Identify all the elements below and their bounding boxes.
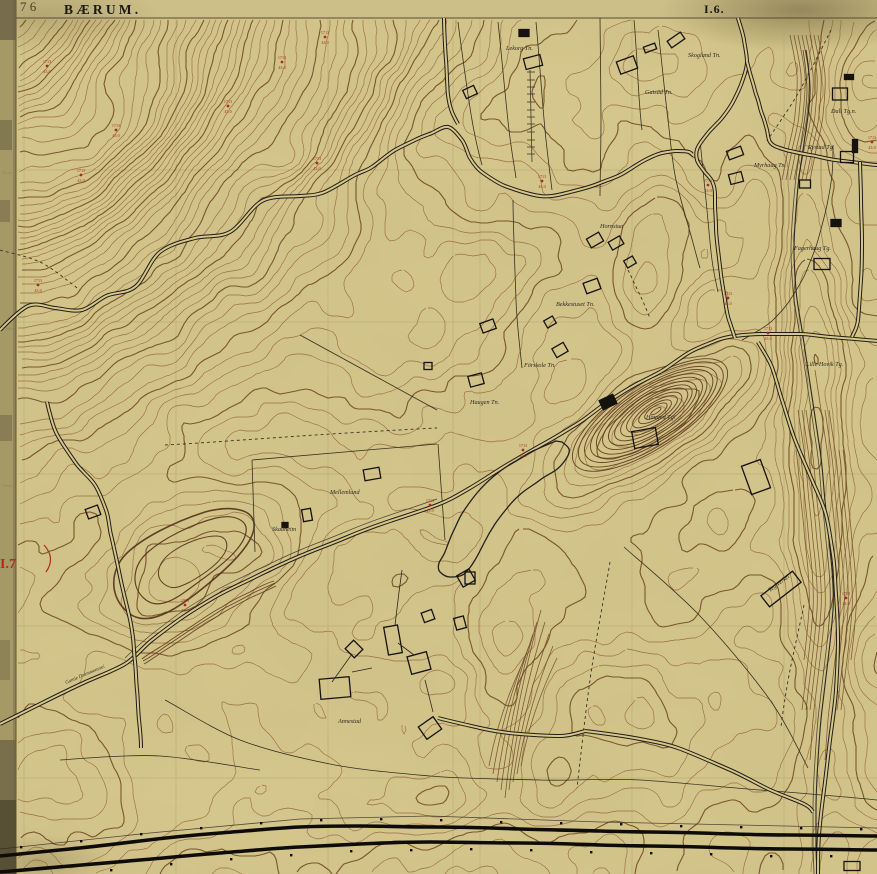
svg-text:Lekorg Tn.: Lekorg Tn. bbox=[505, 45, 533, 52]
svg-text:43.0: 43.0 bbox=[34, 288, 41, 293]
svg-text:1713: 1713 bbox=[842, 591, 850, 596]
svg-text:Fagerhaug Tg.: Fagerhaug Tg. bbox=[793, 245, 831, 252]
svg-text:43.0: 43.0 bbox=[724, 301, 731, 306]
svg-text:43.0: 43.0 bbox=[538, 184, 545, 189]
svg-text:1713: 1713 bbox=[724, 291, 732, 296]
svg-text:Hornstua: Hornstua bbox=[599, 223, 623, 230]
svg-text:43.0: 43.0 bbox=[426, 508, 433, 513]
svg-text:43.0: 43.0 bbox=[112, 133, 119, 138]
svg-text:1713: 1713 bbox=[538, 174, 546, 179]
svg-text:43.0: 43.0 bbox=[313, 166, 320, 171]
svg-text:1713: 1713 bbox=[181, 598, 189, 603]
svg-text:43.0: 43.0 bbox=[704, 188, 711, 193]
svg-text:43.0: 43.0 bbox=[43, 69, 50, 74]
svg-text:1713: 1713 bbox=[519, 443, 527, 448]
svg-text:1713: 1713 bbox=[868, 135, 876, 140]
svg-text:43.0: 43.0 bbox=[77, 178, 84, 183]
svg-text:1713: 1713 bbox=[426, 498, 434, 503]
svg-text:Vestre: Vestre bbox=[2, 483, 13, 488]
svg-text:I.7: I.7 bbox=[0, 557, 16, 572]
svg-text:7 6: 7 6 bbox=[20, 0, 37, 14]
svg-text:1713: 1713 bbox=[112, 123, 120, 128]
svg-text:Haugen Tg!: Haugen Tg! bbox=[645, 414, 676, 421]
svg-text:Haugen Tn.: Haugen Tn. bbox=[469, 399, 499, 406]
svg-text:Rystad Tg.: Rystad Tg. bbox=[807, 144, 834, 151]
svg-text:43.0: 43.0 bbox=[764, 336, 771, 341]
svg-text:1713: 1713 bbox=[224, 99, 232, 104]
svg-text:1713: 1713 bbox=[278, 55, 286, 60]
svg-text:1713: 1713 bbox=[77, 168, 85, 173]
svg-text:1713: 1713 bbox=[704, 178, 712, 183]
svg-text:43.0: 43.0 bbox=[224, 109, 231, 114]
svg-text:Myrhaug Tn.: Myrhaug Tn. bbox=[753, 162, 786, 169]
svg-text:S.ndre: S.ndre bbox=[2, 326, 14, 331]
svg-text:43.0: 43.0 bbox=[181, 608, 188, 613]
svg-text:43.0: 43.0 bbox=[321, 40, 328, 45]
svg-text:Mellemlund: Mellemlund bbox=[329, 489, 360, 496]
svg-text:BÆRUM.: BÆRUM. bbox=[64, 2, 141, 17]
svg-text:Förskole Tn.: Förskole Tn. bbox=[523, 362, 556, 369]
svg-text:Dali Tg.n.: Dali Tg.n. bbox=[830, 108, 856, 115]
svg-text:Annestad: Annestad bbox=[337, 718, 362, 725]
svg-text:43.0: 43.0 bbox=[868, 145, 875, 150]
svg-text:I.6.: I.6. bbox=[704, 2, 725, 16]
svg-text:Bekkestuset Tn.: Bekkestuset Tn. bbox=[556, 301, 595, 308]
svg-text:1713: 1713 bbox=[34, 278, 42, 283]
svg-text:Skogland Tn.: Skogland Tn. bbox=[688, 52, 721, 59]
svg-text:43.0: 43.0 bbox=[278, 65, 285, 70]
svg-text:43.0: 43.0 bbox=[842, 601, 849, 606]
svg-text:1713: 1713 bbox=[764, 326, 772, 331]
svg-text:Skadheim: Skadheim bbox=[272, 526, 297, 533]
svg-text:1713: 1713 bbox=[313, 156, 321, 161]
svg-text:Lille Hovik Tg.: Lille Hovik Tg. bbox=[805, 361, 843, 368]
svg-text:43.0: 43.0 bbox=[519, 453, 526, 458]
svg-text:1713: 1713 bbox=[43, 59, 51, 64]
svg-text:Br.nn: Br.nn bbox=[2, 170, 13, 175]
svg-text:Gaisäd Tn.: Gaisäd Tn. bbox=[645, 89, 673, 96]
svg-text:1713: 1713 bbox=[321, 30, 329, 35]
